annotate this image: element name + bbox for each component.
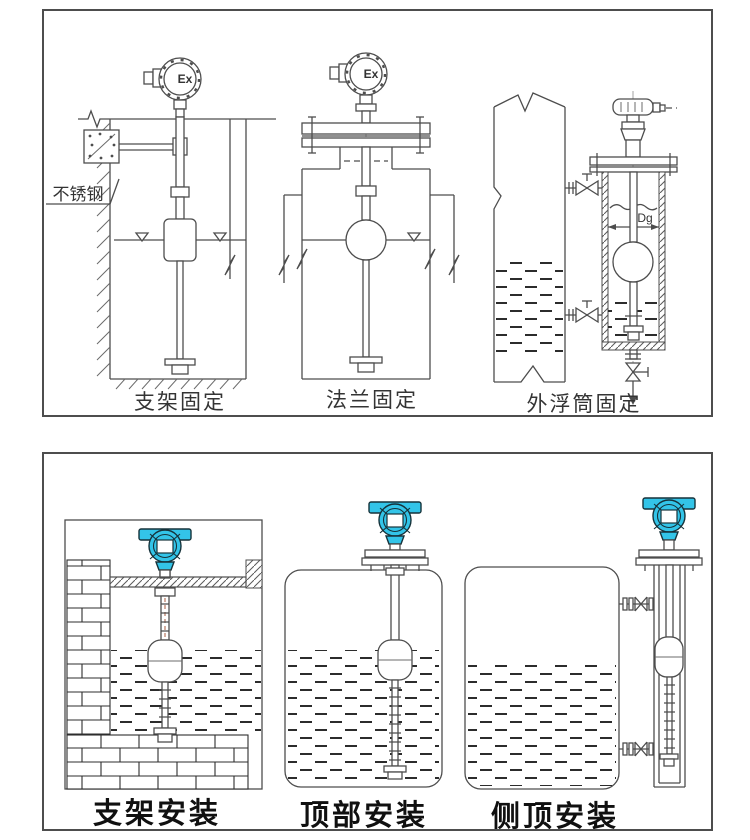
stainless-steel-label: 不锈钢 <box>53 185 104 204</box>
float-level-transmitter <box>636 498 702 766</box>
liquid <box>111 650 261 734</box>
caption-float-chamber-fixing: 外浮筒固定 <box>527 393 642 415</box>
float <box>613 242 653 282</box>
tank-liquid <box>496 259 563 355</box>
head-neck <box>660 532 678 540</box>
caption-side-top-install: 侧顶安装 <box>491 800 619 829</box>
float <box>346 220 386 260</box>
float-chamber: Dg <box>590 153 677 350</box>
stem-end-stop <box>384 766 406 772</box>
caption-bracket-fixing: 支架固定 <box>134 391 226 414</box>
caption-flange-fixing: 法兰固定 <box>326 389 418 412</box>
stem-end-stop <box>165 359 195 365</box>
liquid <box>468 660 616 786</box>
cable-gland-icon <box>330 67 339 79</box>
sensor-stem <box>176 117 184 187</box>
float-level-sensor: Ex <box>302 53 430 372</box>
mounting-bracket <box>84 130 187 163</box>
upper-isolation-valve <box>565 174 602 195</box>
diameter-label: Dg <box>637 211 652 225</box>
bracket-install-diagram: 支架安装 <box>65 520 262 829</box>
lower-isolation-valve <box>565 301 602 322</box>
stem-end-stop <box>660 754 678 759</box>
page: { "figure": { "top_panel": { "captions":… <box>0 0 750 840</box>
ex-marking: Ex <box>364 67 379 81</box>
float-level-sensor: Ex <box>144 58 201 374</box>
cable-gland-icon <box>144 72 153 84</box>
brick-floor <box>67 735 248 789</box>
stem-end-stop <box>350 357 382 363</box>
installation-methods-panel: 支架安装 <box>42 452 713 831</box>
upper-connection-valve <box>619 597 654 611</box>
caption-bracket-install: 支架安装 <box>93 797 221 829</box>
ex-marking: Ex <box>178 72 193 86</box>
side-connector-icon <box>653 103 660 112</box>
stem-end-stop <box>154 728 176 734</box>
caption-top-install: 顶部安装 <box>300 798 428 829</box>
chamber-flange <box>590 157 677 165</box>
display-window <box>157 540 173 553</box>
transmitter-head <box>613 99 677 157</box>
fixing-methods-panel: Ex 不锈钢 支架固定 <box>42 9 713 417</box>
display-window <box>387 514 403 527</box>
brick-wall <box>67 560 110 735</box>
flange-fixing-diagram: Ex 法兰固定 <box>279 53 459 412</box>
top-install-diagram: 顶部安装 <box>285 502 442 829</box>
process-tank <box>494 93 565 382</box>
wall-anchor <box>246 560 262 588</box>
head-neck <box>156 562 174 570</box>
fixing-methods-figure: Ex 不锈钢 支架固定 <box>44 11 711 415</box>
float-chamber-fixing-diagram: Dg <box>494 91 677 415</box>
bracket-fixing-diagram: Ex 不锈钢 支架固定 <box>46 58 276 414</box>
head-neck <box>386 536 404 544</box>
float <box>164 219 196 261</box>
installation-methods-figure: 支架安装 <box>44 454 711 829</box>
side-top-install-diagram: 侧顶安装 <box>465 498 702 829</box>
stainless-steel-note: 不锈钢 <box>46 179 119 204</box>
liquid <box>288 650 439 784</box>
support-shelf <box>110 577 246 587</box>
lower-connection-valve <box>619 742 654 756</box>
stem-end-stop <box>624 326 643 332</box>
display-window <box>661 510 677 523</box>
